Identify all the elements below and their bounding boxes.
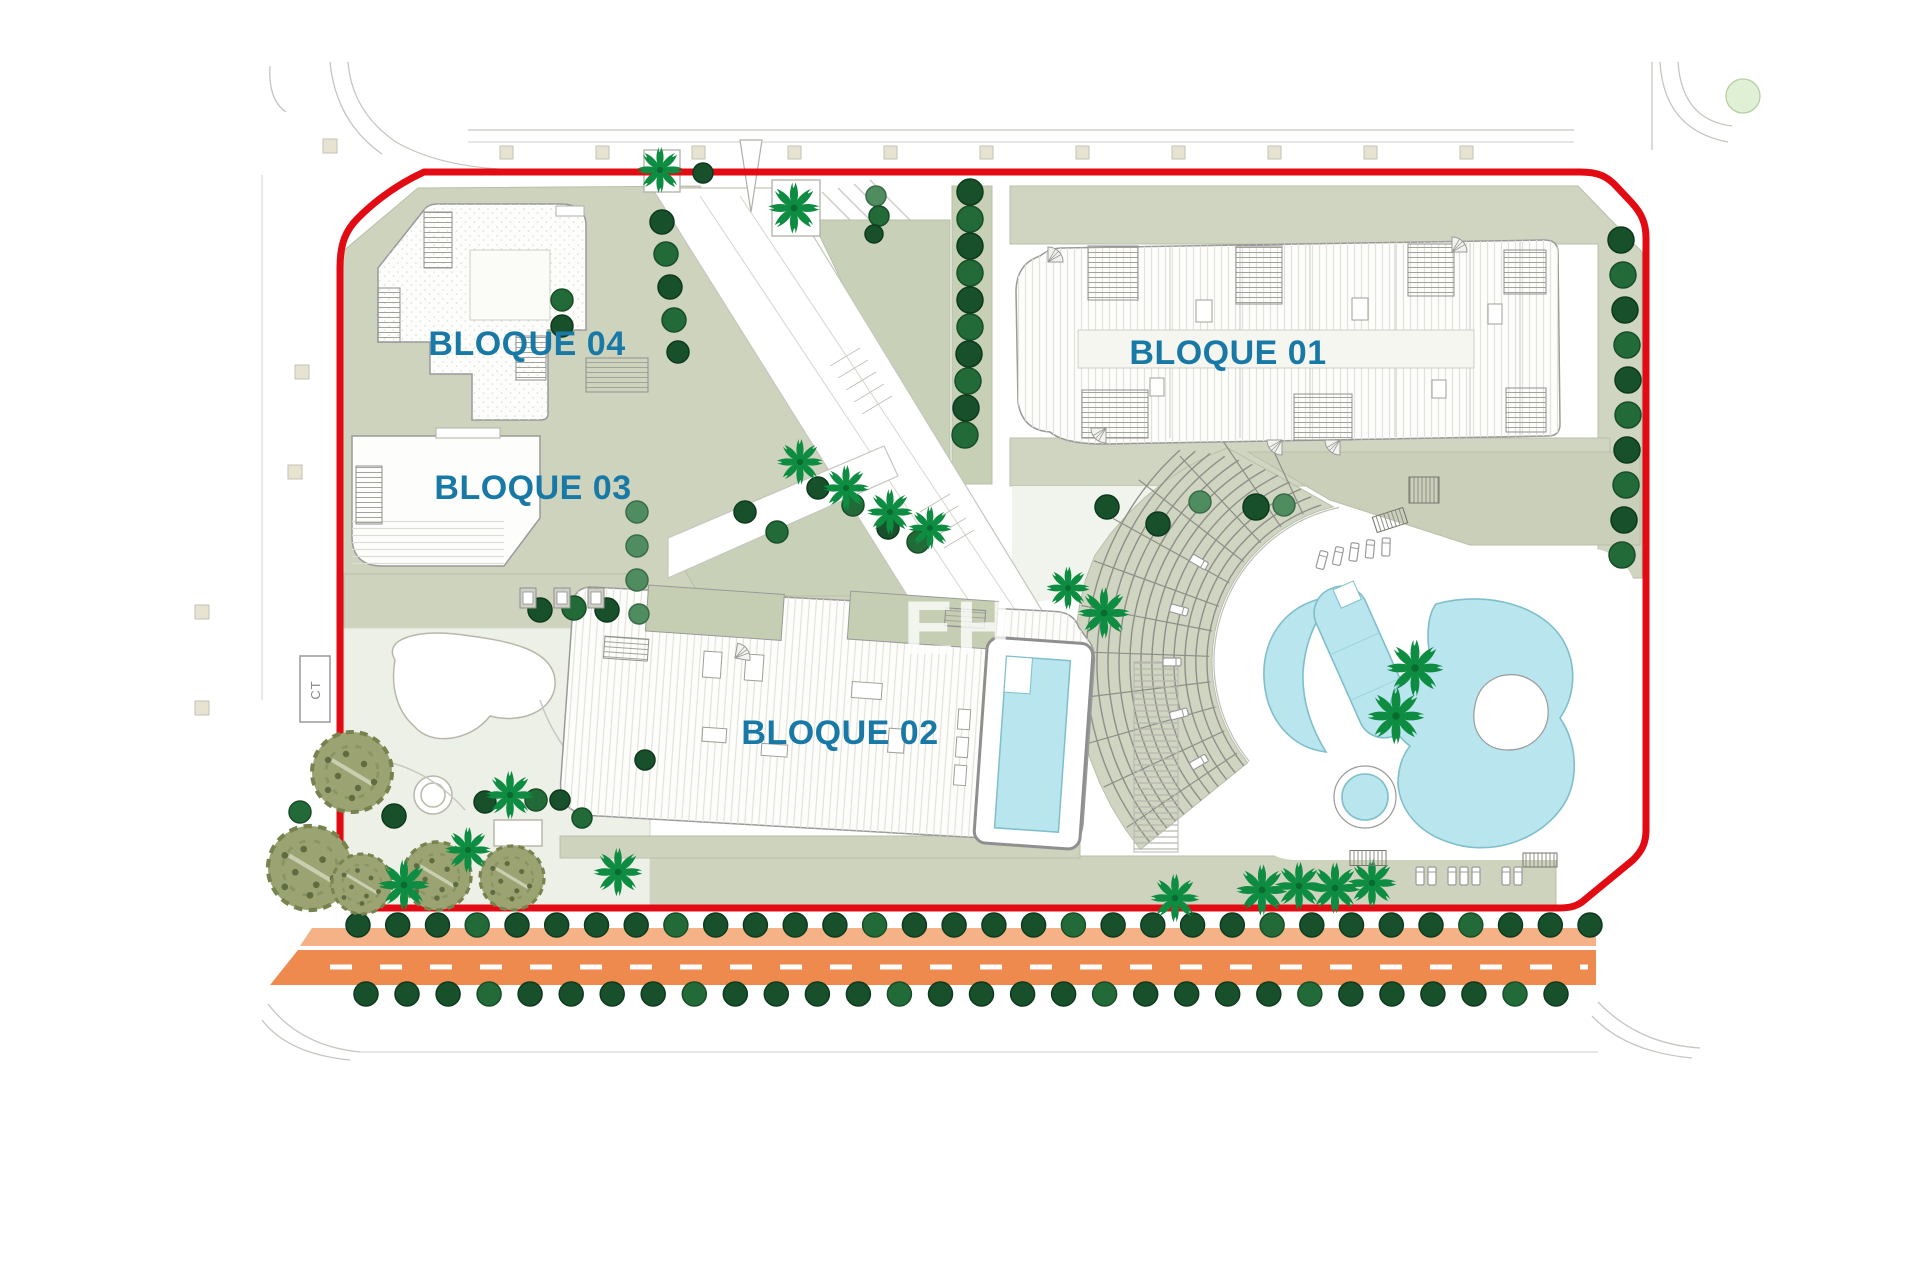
street-tree-icon <box>600 982 624 1006</box>
tree-icon <box>1609 542 1635 568</box>
tree-icon <box>626 569 648 591</box>
street-tree-icon <box>682 982 706 1006</box>
street-tree-icon <box>1011 982 1035 1006</box>
road <box>270 928 1596 985</box>
tree-icon <box>734 501 756 523</box>
street-tree-icon <box>436 982 460 1006</box>
street-tree-icon <box>887 982 911 1006</box>
street-tree-icon <box>354 982 378 1006</box>
street-tree-icon <box>743 913 767 937</box>
street-tree-icon <box>1260 913 1284 937</box>
street-planter-icon <box>1268 146 1281 159</box>
sun-lounger-icon <box>1460 867 1468 885</box>
street-tree-icon <box>1220 913 1244 937</box>
tree-icon <box>1613 472 1639 498</box>
street-tree-icon <box>823 913 847 937</box>
street-planter-icon <box>1364 146 1377 159</box>
benches-layer <box>520 588 604 608</box>
street-tree-icon <box>902 913 926 937</box>
tree-icon <box>807 477 829 499</box>
street-planter-icon <box>884 146 897 159</box>
street-tree-icon <box>505 913 529 937</box>
street-tree-icon <box>386 913 410 937</box>
street-tree-icon <box>1022 913 1046 937</box>
tree-icon <box>1610 262 1636 288</box>
street-tree-icon <box>624 913 648 937</box>
tree-icon <box>869 206 889 226</box>
olive-tree-icon <box>480 846 544 910</box>
tree-icon <box>382 804 406 828</box>
tree-icon <box>654 242 678 266</box>
tree-icon <box>957 179 983 205</box>
street-planter-icon <box>195 701 209 715</box>
spa-pool <box>1342 774 1388 820</box>
tree-icon <box>866 186 886 206</box>
street-tree-icon <box>783 913 807 937</box>
label-block01: BLOQUE 01 <box>1129 334 1326 372</box>
street-planter-icon <box>288 465 302 479</box>
street-planter-icon <box>692 146 705 159</box>
street-tree-icon <box>559 982 583 1006</box>
street-tree-icon <box>395 982 419 1006</box>
street-tree-icon <box>970 982 994 1006</box>
tree-icon <box>551 289 573 311</box>
tree-icon <box>1608 227 1634 253</box>
block02-roof-garden-a <box>645 585 784 640</box>
tree-icon <box>572 808 592 828</box>
street-tree-icon <box>942 913 966 937</box>
sun-lounger-icon <box>1502 867 1510 885</box>
street-tree-icon <box>1544 982 1568 1006</box>
site-plan-page: CT EH BLOQUE 04 BLOQUE 03 BLOQUE 01 BLOQ… <box>0 0 1920 1280</box>
sun-lounger-icon <box>1472 867 1480 885</box>
street-tree-icon <box>518 982 542 1006</box>
watermark-text: EH <box>903 586 1013 671</box>
street-tree-icon <box>1379 913 1403 937</box>
pergola-icon <box>1350 851 1386 866</box>
tree-icon <box>1243 494 1269 520</box>
street-tree-icon <box>1462 982 1486 1006</box>
bench-icon <box>520 588 536 608</box>
transformer-label: CT <box>308 680 323 699</box>
tree-icon <box>550 790 570 810</box>
street-tree-icon <box>1216 982 1240 1006</box>
sun-lounger-icon <box>1514 867 1522 885</box>
tree-icon <box>635 750 655 770</box>
street-tree-icon <box>1380 982 1404 1006</box>
label-block02: BLOQUE 02 <box>741 714 938 752</box>
street-tree-icon <box>982 913 1006 937</box>
tree-icon <box>957 233 983 259</box>
tree-icon <box>1095 495 1119 519</box>
tree-icon <box>658 275 682 299</box>
street-planter-icon <box>295 365 309 379</box>
street-tree-icon <box>465 913 489 937</box>
street-tree-icon <box>1257 982 1281 1006</box>
tree-icon <box>650 210 674 234</box>
street-tree-icon <box>1101 913 1125 937</box>
tree-icon <box>1273 494 1295 516</box>
olive-tree-icon <box>312 732 392 812</box>
street-tree-icon <box>1459 913 1483 937</box>
street-tree-icon <box>846 982 870 1006</box>
tree-icon <box>1615 402 1641 428</box>
tree-icon <box>957 206 983 232</box>
street-planter-icon <box>500 146 513 159</box>
street-tree-icon <box>1499 913 1523 937</box>
tree-icon <box>667 341 689 363</box>
playground-box <box>494 820 542 846</box>
street-tree-icon <box>477 982 501 1006</box>
street-tree-icon <box>641 982 665 1006</box>
garden-circle-inner <box>421 783 445 807</box>
street-tree-icon <box>1421 982 1445 1006</box>
street-tree-icon <box>426 913 450 937</box>
street-planter-icon <box>980 146 993 159</box>
street-tree-icon <box>1141 913 1165 937</box>
street-tree-icon <box>1093 982 1117 1006</box>
street-planter-icon <box>596 146 609 159</box>
tree-icon <box>957 314 983 340</box>
bench-icon <box>554 588 570 608</box>
street-tree-icon <box>585 913 609 937</box>
sun-lounger-icon <box>1163 658 1181 666</box>
street-tree-icon <box>1061 913 1085 937</box>
tree-icon <box>629 604 649 624</box>
street-planter-icon <box>323 139 337 153</box>
tree-icon <box>957 287 983 313</box>
bench-icon <box>588 588 604 608</box>
street-tree-icon <box>1300 913 1324 937</box>
pergola-icon <box>1409 477 1439 503</box>
street-tree-icon <box>764 982 788 1006</box>
sun-lounger-icon <box>1416 867 1424 885</box>
street-planter-icon <box>195 605 209 619</box>
street-tree-icon <box>664 913 688 937</box>
street-tree-icon <box>1298 982 1322 1006</box>
tree-icon <box>952 422 978 448</box>
street-tree-icon <box>545 913 569 937</box>
street-tree-icon <box>1503 982 1527 1006</box>
tree-icon <box>1615 367 1641 393</box>
bridge-stairs <box>586 358 648 392</box>
street-planter-icon <box>788 146 801 159</box>
label-block04: BLOQUE 04 <box>428 325 625 363</box>
street-tree-icon <box>929 982 953 1006</box>
tree-icon <box>1614 332 1640 358</box>
transformer-box: CT <box>300 656 330 722</box>
lagoon-island <box>1474 675 1548 750</box>
street-tree-icon <box>1340 913 1364 937</box>
street-tree-icon <box>1538 913 1562 937</box>
street-planter-icon <box>1460 146 1473 159</box>
tree-icon <box>957 260 983 286</box>
street-tree-icon <box>1181 913 1205 937</box>
street-tree-icon <box>863 913 887 937</box>
street-tree-icon <box>1339 982 1363 1006</box>
sun-lounger-icon <box>1365 540 1375 559</box>
tree-icon <box>693 163 713 183</box>
tree-icon <box>766 521 788 543</box>
tree-icon <box>953 395 979 421</box>
street-tree-icon <box>723 982 747 1006</box>
pergola-icon <box>1523 853 1557 867</box>
sun-lounger-icon <box>1382 538 1391 556</box>
street-tree-icon <box>704 913 728 937</box>
tree-icon <box>662 308 686 332</box>
street-planter-icon <box>1076 146 1089 159</box>
sun-lounger-icon <box>1428 867 1436 885</box>
sun-lounger-icon <box>1448 867 1456 885</box>
tree-icon <box>289 801 311 823</box>
label-block03: BLOQUE 03 <box>434 469 631 507</box>
tree-icon <box>1146 512 1170 536</box>
tree-icon <box>1614 437 1640 463</box>
sun-lounger-icon <box>1349 543 1359 562</box>
street-tree-icon <box>1419 913 1443 937</box>
tree-icon <box>626 535 648 557</box>
street-tree-icon <box>1175 982 1199 1006</box>
street-tree-icon <box>1578 913 1602 937</box>
tree-icon <box>1612 297 1638 323</box>
tree-icon <box>1189 491 1211 513</box>
street-tree-icon <box>1134 982 1158 1006</box>
street-tree-icon <box>1052 982 1076 1006</box>
street-tree-icon <box>805 982 829 1006</box>
tree-icon <box>1611 507 1637 533</box>
tree-icon <box>955 368 981 394</box>
street-tree-icon <box>346 913 370 937</box>
site-plan-drawing: CT EH BLOQUE 04 BLOQUE 03 BLOQUE 01 BLOQ… <box>0 0 1920 1280</box>
tree-icon <box>956 341 982 367</box>
street-planter-icon <box>1172 146 1185 159</box>
boardwalk <box>1134 662 1178 852</box>
tree-icon <box>865 225 883 243</box>
